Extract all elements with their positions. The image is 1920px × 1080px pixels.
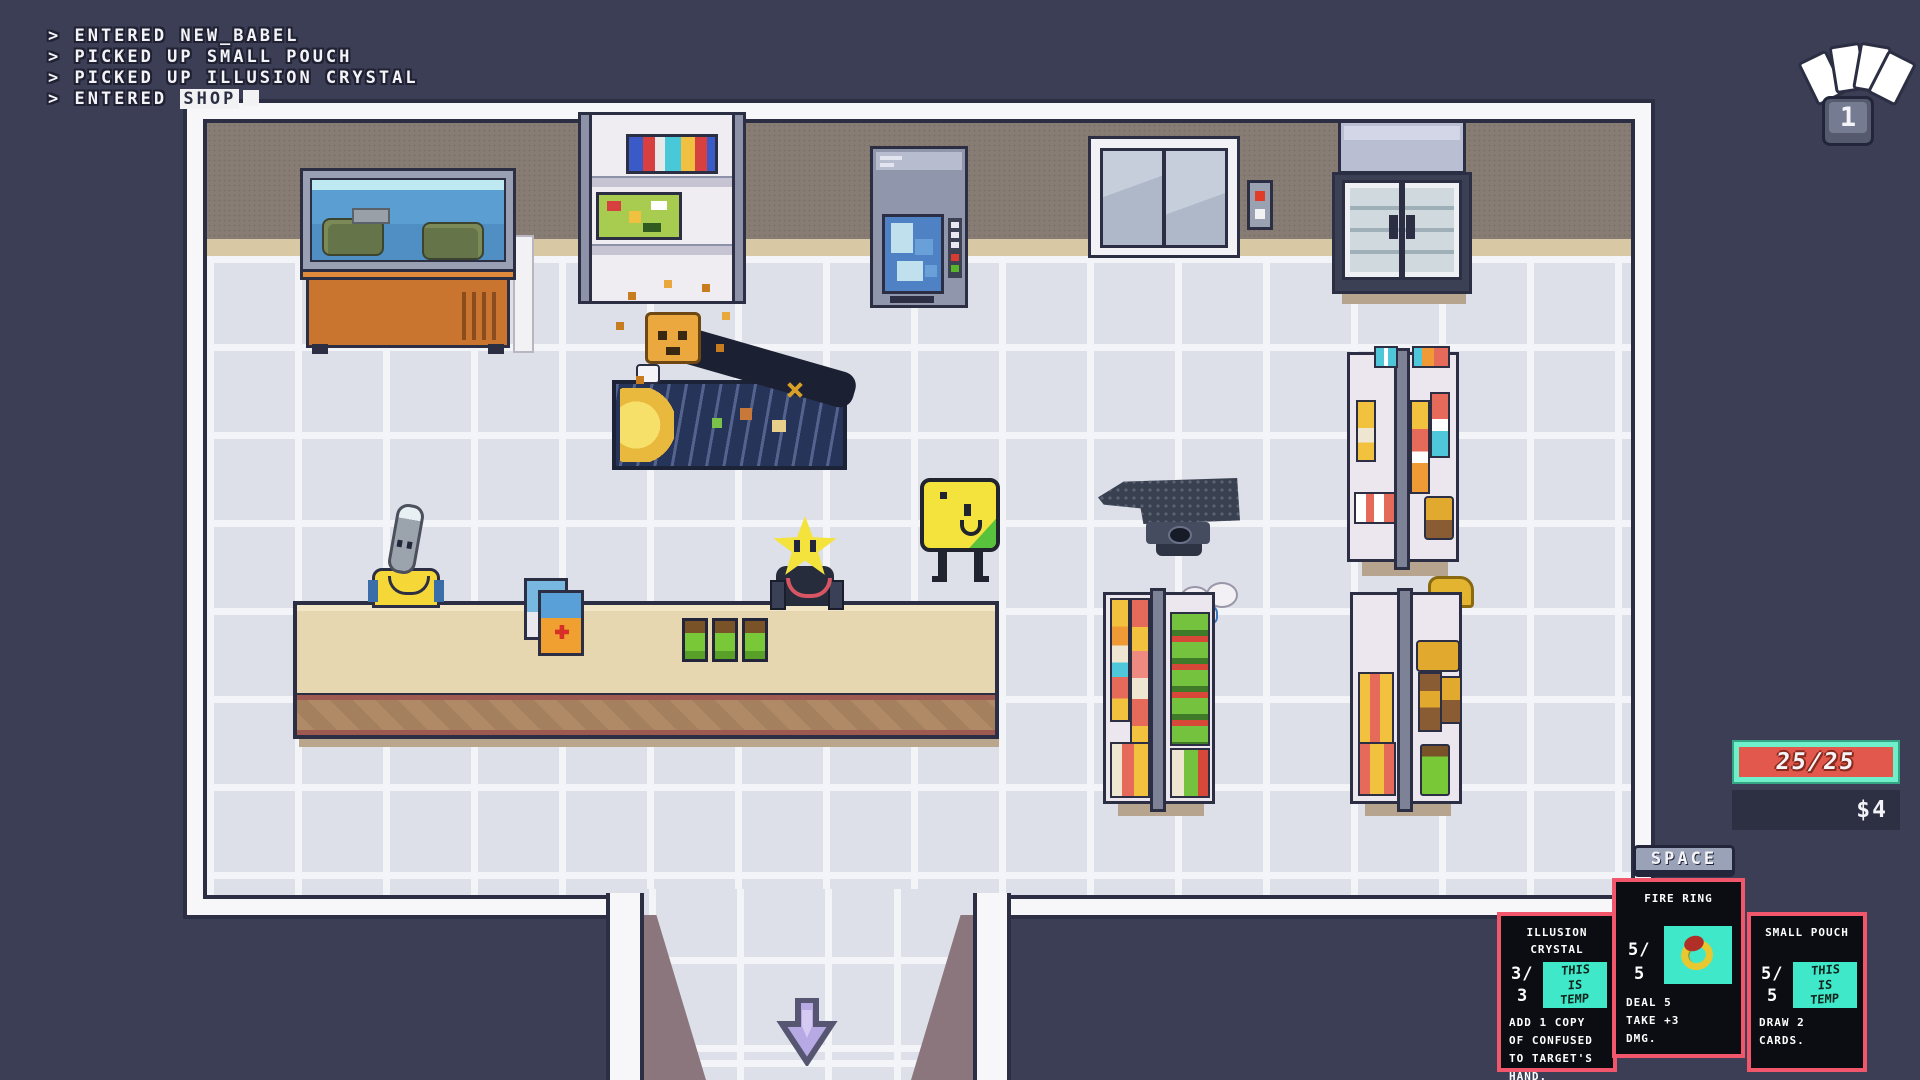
event-log: > ENTERED NEW_BABEL > PICKED UP SMALL PO… (48, 26, 419, 110)
money-panel: $4 (1732, 790, 1900, 830)
card-art-temp: THIS IS TEMP (1543, 962, 1607, 1008)
elevator-door-left (1103, 151, 1162, 245)
money-value: $4 (1856, 797, 1888, 823)
text-cursor (243, 90, 259, 106)
card-description: DRAW 2 CARDS. (1759, 1014, 1805, 1050)
exit-wall-right (973, 893, 1011, 1080)
elevator-button-panel (1247, 180, 1273, 230)
card-title: SMALL POUCH (1751, 925, 1863, 942)
mat-sun-art (620, 388, 674, 462)
card-description: DEAL 5 TAKE +3 DMG. (1626, 994, 1679, 1048)
card-art-text: THIS IS TEMP (1792, 960, 1857, 1011)
down-arrow-icon (776, 998, 838, 1066)
card-cost-bottom: 3 (1517, 986, 1528, 1006)
card-illusion-crystal[interactable]: ILLUSION CRYSTAL 3/ 3 THIS IS TEMP ADD 1… (1497, 912, 1617, 1072)
log-current-prefix: > ENTERED (48, 89, 180, 109)
card-description: ADD 1 COPY OF CONFUSED TO TARGET'S HAND. (1509, 1014, 1593, 1080)
card-cost-top: 5/ (1628, 940, 1650, 960)
card-title: FIRE RING (1616, 891, 1741, 908)
player-body (920, 478, 1000, 552)
shelf-map (596, 192, 682, 240)
log-current-highlight: SHOP (180, 89, 239, 109)
exit-wall-left (606, 893, 644, 1080)
card-cost-top: 5/ (1761, 964, 1783, 984)
log-line-current: > ENTERED SHOP (48, 89, 419, 110)
log-line: > PICKED UP ILLUSION CRYSTAL (48, 68, 419, 89)
hand-key-1[interactable]: 1 (1822, 96, 1874, 146)
card-art-text: THIS IS TEMP (1542, 960, 1607, 1011)
hp-bar: 25/25 (1732, 740, 1900, 784)
wall-column (513, 235, 534, 353)
shelf-books (626, 134, 718, 174)
log-line: > ENTERED NEW_BABEL (48, 26, 419, 47)
card-art-ring (1664, 926, 1732, 984)
vending-glass (882, 214, 944, 294)
hp-value: 25/25 (1775, 749, 1858, 775)
hand-key-label: 1 (1829, 102, 1867, 133)
card-small-pouch[interactable]: SMALL POUCH 5/ 5 THIS IS TEMP DRAW 2 CAR… (1747, 912, 1867, 1072)
card-fire-ring[interactable]: FIRE RING 5/ 5 DEAL 5 TAKE +3 DMG. (1612, 878, 1745, 1058)
vending-keypad (948, 218, 962, 278)
rack-produce (1170, 612, 1210, 746)
game-screen: > ENTERED NEW_BABEL > PICKED UP SMALL PO… (0, 0, 1920, 1080)
hp-bar-fill: 25/25 (1739, 747, 1893, 777)
card-cost-top: 3/ (1511, 964, 1533, 984)
aquarium-rock (352, 208, 390, 224)
space-key-label: SPACE (1651, 849, 1717, 869)
counter-front (293, 695, 999, 739)
log-line: > PICKED UP SMALL POUCH (48, 47, 419, 68)
elevator-door-right (1166, 151, 1225, 245)
fridge-doors (1342, 180, 1462, 280)
space-key[interactable]: SPACE (1633, 845, 1735, 877)
card-pack-front (538, 590, 584, 656)
elevator-call-button (1255, 191, 1265, 201)
card-cost-bottom: 5 (1767, 986, 1778, 1006)
card-art-temp: THIS IS TEMP (1793, 962, 1857, 1008)
aquarium-stand-drawer (462, 292, 502, 340)
card-title: ILLUSION CRYSTAL (1501, 925, 1613, 958)
card-cost-bottom: 5 (1634, 964, 1645, 984)
sun-character-head (645, 312, 701, 364)
aquarium-crab-2 (422, 222, 484, 260)
